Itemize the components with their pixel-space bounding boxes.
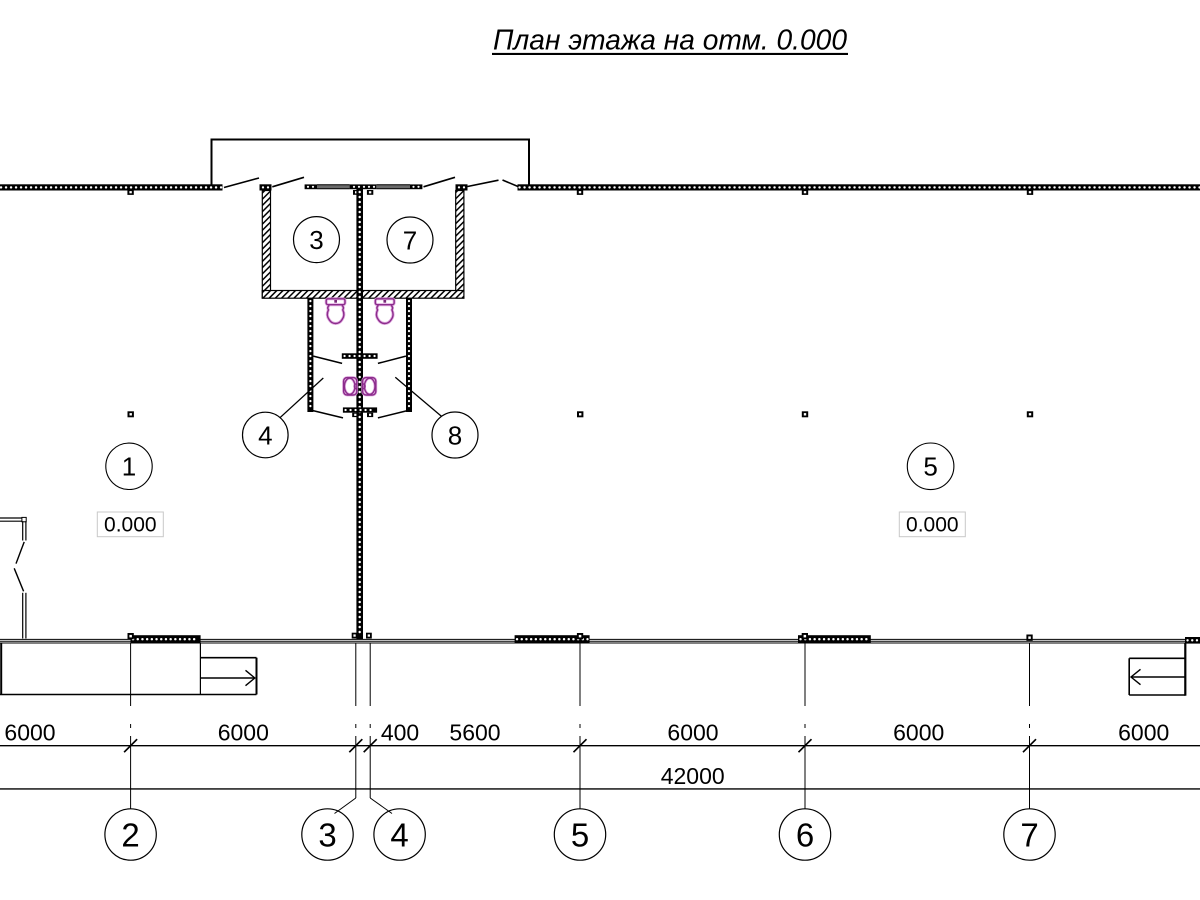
svg-text:5600: 5600 xyxy=(449,720,500,746)
svg-text:0.000: 0.000 xyxy=(104,514,157,537)
svg-text:6000: 6000 xyxy=(4,720,55,746)
svg-text:6000: 6000 xyxy=(1118,720,1169,746)
svg-text:4: 4 xyxy=(390,816,408,853)
svg-text:400: 400 xyxy=(381,720,419,746)
svg-text:План этажа на отм. 0.000: План этажа на отм. 0.000 xyxy=(493,25,847,57)
svg-text:5: 5 xyxy=(923,452,937,482)
svg-text:6000: 6000 xyxy=(893,720,944,746)
svg-text:2: 2 xyxy=(121,816,139,853)
svg-text:6: 6 xyxy=(796,816,814,853)
svg-text:3: 3 xyxy=(318,816,336,853)
svg-text:7: 7 xyxy=(403,225,417,255)
svg-text:0.000: 0.000 xyxy=(906,514,959,537)
svg-text:3: 3 xyxy=(309,225,323,255)
svg-text:1: 1 xyxy=(122,452,136,482)
svg-text:7: 7 xyxy=(1020,816,1038,853)
svg-text:6000: 6000 xyxy=(218,720,269,746)
svg-text:8: 8 xyxy=(448,420,462,450)
svg-text:6000: 6000 xyxy=(667,720,718,746)
svg-text:42000: 42000 xyxy=(661,763,725,789)
svg-text:5: 5 xyxy=(571,816,589,853)
svg-text:4: 4 xyxy=(258,420,272,450)
